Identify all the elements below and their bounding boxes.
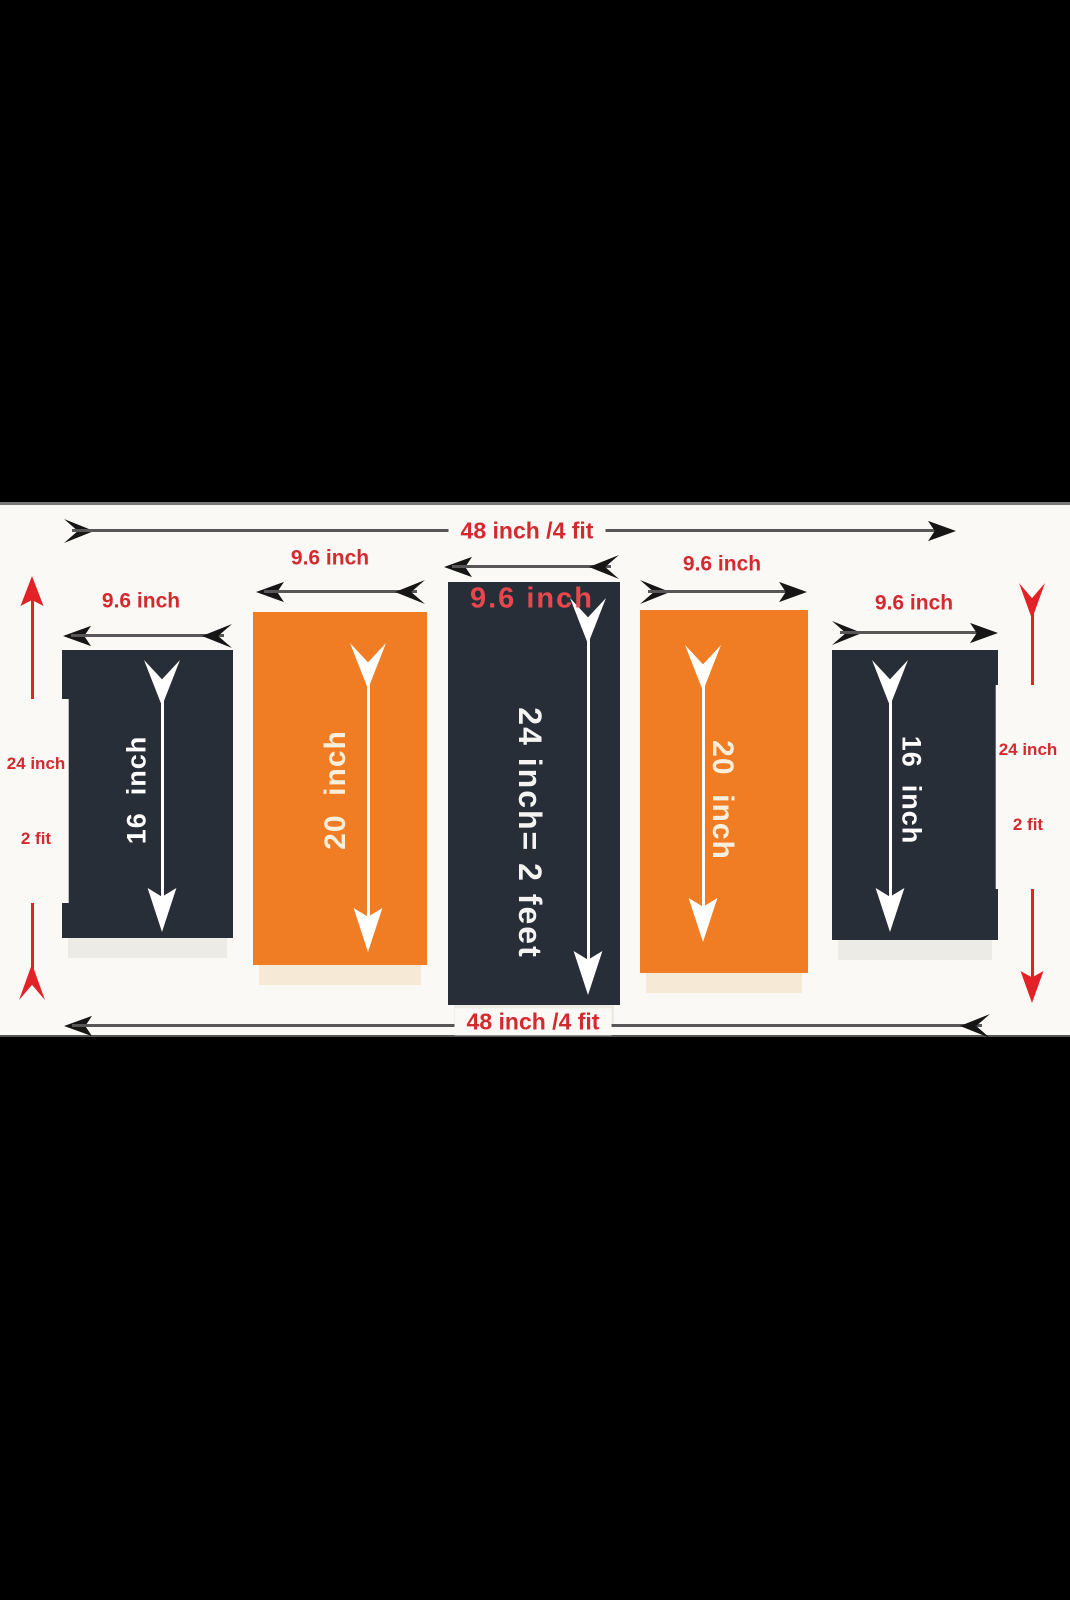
- panel-1-width-arrow-icon: [63, 624, 232, 648]
- arrow-line: [840, 631, 990, 634]
- arrow-line: [161, 692, 164, 900]
- panel-5-width-label: 9.6 inch: [875, 591, 953, 614]
- panel-1-height-text: 16 inch: [124, 736, 151, 845]
- screenshot-root: 48 inch /4 fit 48 inch /4 fit 9.6 inch 9…: [0, 0, 1070, 1600]
- panel-2-height-arrow-icon: [349, 643, 387, 952]
- arrow-line: [648, 590, 799, 593]
- panel-4-height-text: 20 inch: [707, 740, 737, 860]
- panel-5-height-text: 16 inch: [898, 736, 925, 845]
- panel-3-height-text: 24 inch= 2 feet: [514, 707, 546, 958]
- panel-4-width-arrow-icon: [640, 580, 807, 604]
- arrow-line: [452, 565, 611, 568]
- arrow-tail-icon: [19, 964, 45, 1000]
- arrow-tail-icon: [395, 580, 425, 604]
- arrow-line: [264, 590, 417, 593]
- arrow-tail-icon: [589, 555, 619, 579]
- arrow-tail-icon: [960, 1014, 990, 1038]
- panel-2-width-label: 9.6 inch: [291, 546, 369, 569]
- panel-1-width-label: 9.6 inch: [102, 589, 180, 612]
- panel-2-width-arrow-icon: [256, 580, 425, 604]
- overall-left-height-line1: 24 inch: [7, 751, 66, 776]
- arrow-line: [702, 677, 705, 910]
- overall-right-height-line1: 24 inch: [999, 737, 1058, 762]
- overall-bottom-width-label: 48 inch /4 fit: [455, 1008, 612, 1035]
- panel-4-width-label: 9.6 inch: [683, 552, 761, 575]
- overall-left-height-line2: 2 fit: [7, 826, 66, 851]
- panel-3-width-overlay-label: 9.6 inch: [470, 583, 594, 616]
- overall-top-width-label: 48 inch /4 fit: [449, 517, 606, 544]
- panel-3-width-arrow-icon: [444, 555, 619, 579]
- arrow-line: [367, 675, 370, 920]
- panel-5-width-arrow-icon: [832, 621, 998, 645]
- arrow-line: [71, 634, 224, 637]
- panel-3-height-arrow-icon: [569, 598, 607, 995]
- panel-2-height-text: 20 inch: [321, 730, 351, 850]
- overall-right-height-label: 24 inch 2 fit: [996, 685, 1061, 889]
- arrow-line: [889, 692, 892, 900]
- overall-left-height-label: 24 inch 2 fit: [4, 699, 69, 903]
- arrow-tail-icon: [202, 624, 232, 648]
- arrow-line: [587, 630, 590, 963]
- overall-right-height-line2: 2 fit: [999, 812, 1058, 837]
